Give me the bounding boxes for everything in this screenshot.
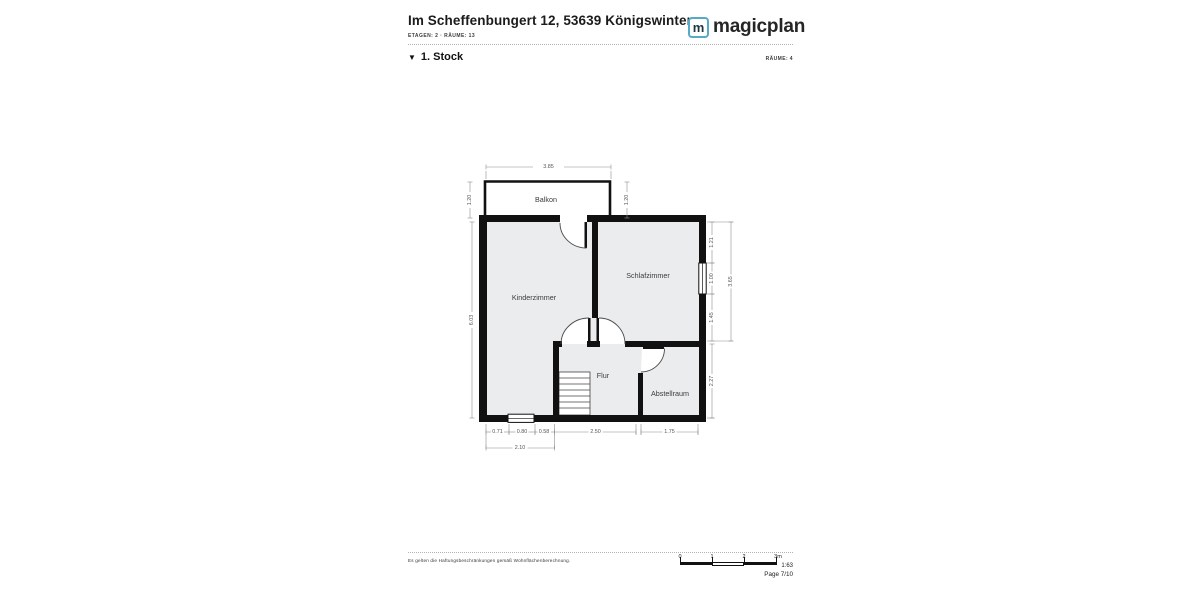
- room-label-flur: Flur: [597, 371, 610, 380]
- dim-bottom-window: 0.80: [517, 429, 528, 435]
- room-label-schlafzimmer: Schlafzimmer: [626, 271, 670, 280]
- header-divider: [408, 44, 793, 45]
- logo-wordmark: magicplan: [713, 16, 805, 38]
- scale-segment-black: [680, 562, 712, 565]
- dim-bottom-total: 2.10: [515, 445, 526, 451]
- magicplan-logo-icon: m: [688, 17, 709, 38]
- scale-ratio: 1:63: [781, 563, 793, 569]
- dim-abstellraum-width: 1.75: [664, 429, 675, 435]
- dim-right-seg1: 1.21: [709, 237, 715, 248]
- page-subtitle: ETAGEN: 2 · RÄUME: 13: [408, 33, 475, 39]
- dim-right-seg3: 1.45: [709, 312, 715, 323]
- room-label-kinderzimmer: Kinderzimmer: [512, 293, 557, 302]
- balcony-door-panel: [585, 222, 588, 248]
- disclaimer-text: Es gelten die Haftungsbeschränkungen gem…: [408, 558, 570, 563]
- window-right: [699, 263, 706, 294]
- logo-letter: m: [693, 20, 705, 35]
- dim-balkon-left: 1.20: [467, 195, 473, 206]
- scale-segment-black: [744, 562, 777, 565]
- dim-left-height: 6.03: [469, 315, 475, 326]
- room-label-abstellraum: Abstellraum: [651, 389, 689, 398]
- window-bottom: [508, 414, 534, 422]
- floor-section-toggle[interactable]: ▼ 1. Stock: [408, 51, 463, 63]
- dim-bottom-seg3: 0.58: [539, 429, 550, 435]
- abstellraum-door-panel: [643, 347, 664, 350]
- footer-divider: [408, 552, 793, 553]
- kinderzimmer-door-panel: [588, 318, 591, 343]
- dim-bottom-seg1: 0.71: [492, 429, 503, 435]
- report-page: Im Scheffenbungert 12, 53639 Königswinte…: [0, 0, 1200, 600]
- floor-plan: 3.85 1.20 1.20 6.03 1.21 1.00 1.45 3.65 …: [408, 150, 793, 460]
- collapse-triangle-icon: ▼: [408, 53, 416, 62]
- dim-right-window: 1.00: [709, 273, 715, 284]
- schlafzimmer-door-panel: [597, 318, 600, 343]
- floor-label: 1. Stock: [421, 51, 463, 63]
- dim-right-total: 3.65: [728, 276, 734, 287]
- room-label-balkon: Balkon: [535, 195, 557, 204]
- rooms-count-badge: RÄUME: 4: [766, 56, 793, 62]
- scale-segment-white: [712, 562, 744, 566]
- dim-flur-width: 2.50: [590, 429, 601, 435]
- dim-balkon-right: 1.20: [624, 195, 630, 206]
- stairs: [559, 372, 590, 415]
- dim-top-width: 3.85: [543, 164, 554, 170]
- page-title: Im Scheffenbungert 12, 53639 Königswinte…: [408, 13, 692, 28]
- page-number: Page 7/10: [764, 571, 793, 578]
- dim-abstellraum-height: 2.27: [709, 376, 715, 387]
